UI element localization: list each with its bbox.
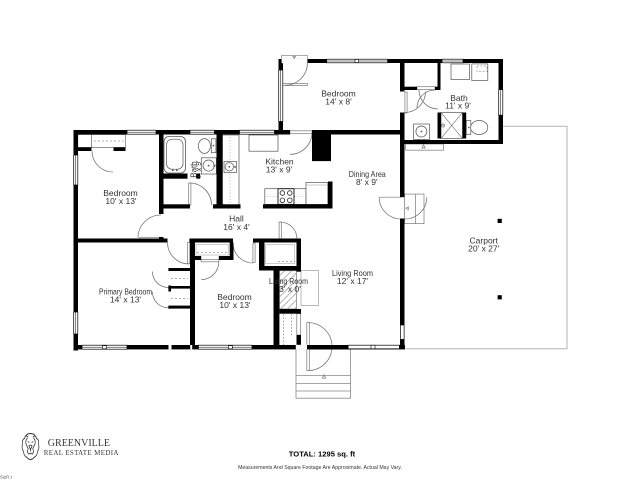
svg-text:Measurements And Square Footag: Measurements And Square Footage Are Appr… [238,465,402,471]
svg-text:3' x 0': 3' x 0' [279,284,301,294]
svg-text:20' x 27': 20' x 27' [468,244,500,254]
svg-text:10' x 13': 10' x 13' [219,300,251,310]
svg-text:GREENVILLE: GREENVILLE [48,438,110,449]
svg-text:REAL ESTATE MEDIA: REAL ESTATE MEDIA [44,449,119,457]
svg-text:8' x 9': 8' x 9' [356,177,378,187]
svg-text:14' x 13': 14' x 13' [110,294,142,304]
svg-text:TOTAL: 1295 sq. ft: TOTAL: 1295 sq. ft [289,449,356,458]
svg-text:10' x 13': 10' x 13' [105,196,137,206]
svg-text:16' x 4': 16' x 4' [223,222,250,232]
svg-text:14' x 8': 14' x 8' [325,97,352,107]
svg-text:SqFt.r: SqFt.r [0,475,13,480]
svg-text:13' x 9': 13' x 9' [266,164,293,174]
svg-text:11' x 9': 11' x 9' [445,101,471,111]
svg-text:7' x 9': 7' x 9' [196,161,203,179]
svg-text:12' x 17': 12' x 17' [337,276,369,286]
